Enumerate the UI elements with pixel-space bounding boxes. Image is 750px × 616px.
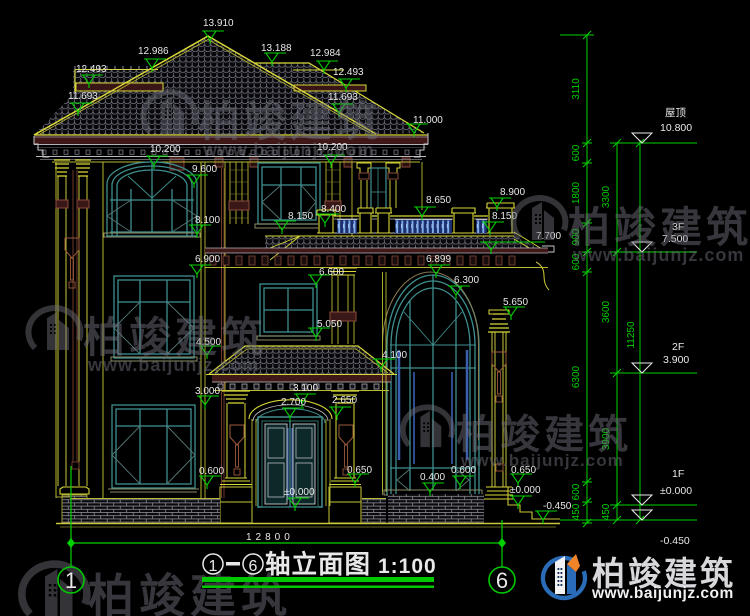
svg-text:-0.450: -0.450 [543,501,572,512]
svg-text:屋顶: 屋顶 [665,107,686,119]
svg-text:1: 1 [65,568,77,593]
svg-text:8.400: 8.400 [321,204,346,215]
svg-text:11.000: 11.000 [413,115,443,126]
svg-text:柏竣建筑: 柏竣建筑 [198,98,382,145]
svg-text:3.100: 3.100 [293,383,318,394]
svg-text:450: 450 [571,503,582,520]
svg-text:8.900: 8.900 [500,187,525,198]
svg-text:0.400: 0.400 [420,472,445,483]
svg-text:www.baijunjz.com: www.baijunjz.com [460,451,624,470]
svg-text:柏竣建筑: 柏竣建筑 [88,570,292,616]
svg-text:10.200: 10.200 [150,144,181,155]
svg-text:5.650: 5.650 [503,297,528,308]
svg-text:600: 600 [571,483,582,500]
svg-text:6: 6 [249,558,258,575]
svg-text:2.700: 2.700 [281,397,306,408]
svg-text:0.650: 0.650 [347,465,372,476]
svg-text:5.050: 5.050 [317,319,342,330]
svg-text:3110: 3110 [571,78,582,100]
svg-text:13.188: 13.188 [261,43,292,54]
svg-text:8.650: 8.650 [426,195,451,206]
svg-text:2.650: 2.650 [332,395,357,406]
svg-text:6: 6 [496,568,508,593]
svg-text:轴立面图: 轴立面图 [265,550,371,579]
svg-text:www.baijunjz.com: www.baijunjz.com [591,585,734,602]
svg-text:1800: 1800 [571,181,582,204]
svg-text:6.900: 6.900 [195,254,220,265]
svg-text:柏竣建筑: 柏竣建筑 [83,314,267,361]
svg-text:柏竣建筑: 柏竣建筑 [568,204,750,251]
svg-text:0.600: 0.600 [199,466,224,477]
svg-text:600: 600 [571,144,582,161]
svg-text:12.984: 12.984 [310,48,341,59]
svg-text:11.693: 11.693 [68,91,98,102]
svg-text:9.600: 9.600 [192,164,217,175]
svg-text:3.000: 3.000 [195,386,220,397]
svg-text:3.900: 3.900 [663,354,689,366]
svg-text:1: 1 [209,558,218,575]
svg-text:6.899: 6.899 [426,254,451,265]
svg-text:450: 450 [601,503,612,520]
svg-text:6300: 6300 [571,365,582,388]
svg-text:www.baijunjz.com: www.baijunjz.com [202,140,374,160]
svg-text:12800: 12800 [246,532,294,543]
svg-text:±0.000: ±0.000 [284,487,315,498]
svg-text:±0.000: ±0.000 [510,485,541,496]
svg-text:6.300: 6.300 [454,275,479,286]
svg-text:2F: 2F [672,341,684,353]
svg-text:10.800: 10.800 [660,122,692,134]
svg-text:11250: 11250 [626,321,637,349]
svg-text:12.493: 12.493 [76,64,107,75]
svg-text:±0.000: ±0.000 [660,485,692,497]
svg-text:8.150: 8.150 [288,211,313,222]
svg-text:4.100: 4.100 [382,350,407,361]
svg-text:1F: 1F [672,468,684,480]
svg-text:1:100: 1:100 [378,555,437,578]
svg-text:6.600: 6.600 [319,267,344,278]
svg-text:12.986: 12.986 [138,46,169,57]
svg-text:13.910: 13.910 [203,18,234,29]
svg-text:3600: 3600 [601,300,612,323]
svg-text:12.493: 12.493 [333,67,364,78]
svg-text:-0.450: -0.450 [660,535,690,547]
svg-text:8.100: 8.100 [195,215,220,226]
svg-text:www.baijunjz.com: www.baijunjz.com [572,245,744,265]
svg-text:www.baijunjz.com: www.baijunjz.com [87,355,259,375]
